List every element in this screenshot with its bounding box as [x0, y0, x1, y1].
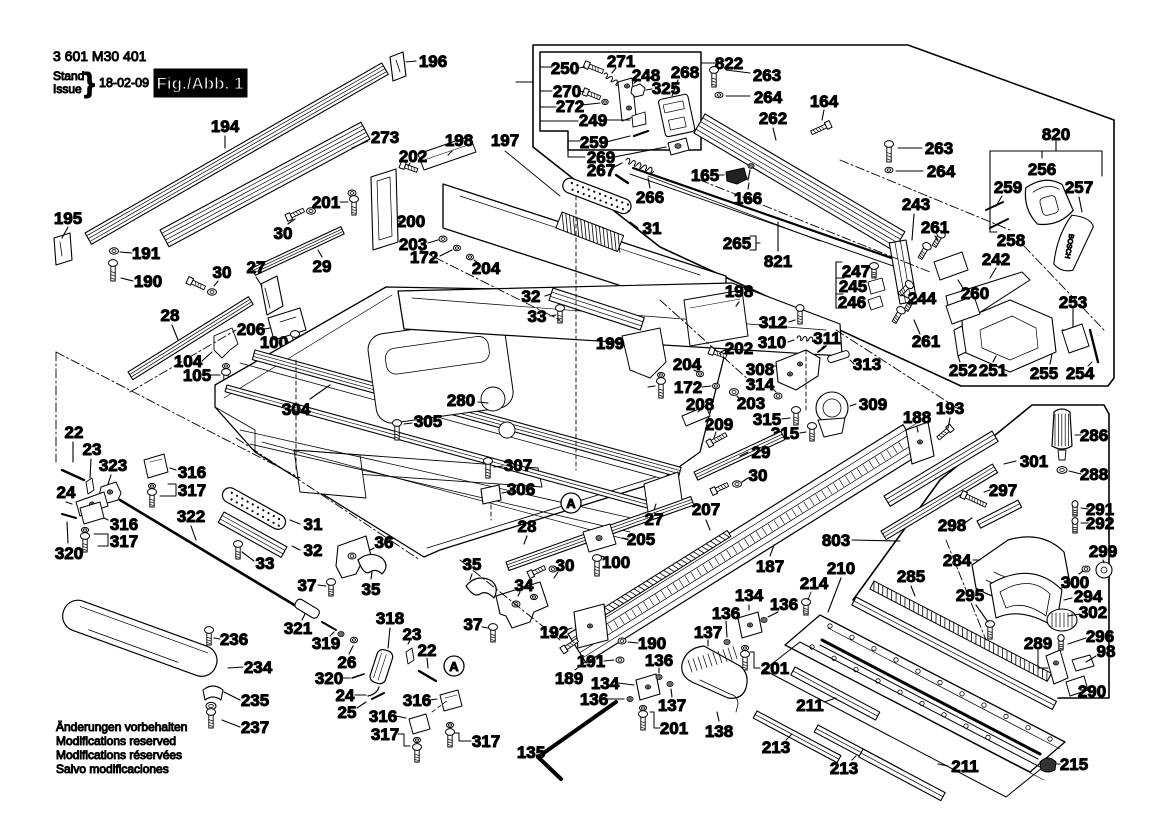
svg-text:246: 246: [838, 293, 866, 312]
svg-text:Stand: Stand: [53, 69, 84, 83]
svg-text:Modifications réservées: Modifications réservées: [56, 748, 182, 762]
svg-text:194: 194: [211, 117, 240, 136]
svg-text:201: 201: [312, 193, 340, 212]
svg-text:136: 136: [770, 595, 798, 614]
svg-text:213: 213: [762, 738, 790, 757]
svg-text:30: 30: [213, 263, 232, 282]
svg-text:100: 100: [602, 553, 630, 572]
svg-text:202: 202: [399, 147, 427, 166]
svg-text:27: 27: [247, 258, 266, 277]
svg-text:262: 262: [759, 109, 787, 128]
svg-text:24: 24: [57, 483, 76, 502]
svg-text:A: A: [449, 659, 459, 674]
svg-text:286: 286: [1080, 426, 1108, 445]
svg-text:211: 211: [796, 696, 823, 715]
svg-text:35: 35: [362, 580, 381, 599]
svg-text:280: 280: [447, 391, 475, 410]
svg-text:316: 316: [369, 707, 397, 726]
svg-text:237: 237: [241, 718, 269, 737]
svg-text:261: 261: [921, 218, 949, 237]
svg-text:267: 267: [587, 161, 615, 180]
svg-text:258: 258: [997, 231, 1025, 250]
svg-text:264: 264: [754, 88, 783, 107]
svg-text:166: 166: [734, 189, 762, 208]
svg-text:821: 821: [764, 252, 792, 271]
svg-text:322: 322: [177, 507, 205, 526]
svg-text:250: 250: [551, 59, 579, 78]
svg-text:256: 256: [1028, 160, 1056, 179]
svg-text:172: 172: [410, 248, 438, 267]
svg-text:191: 191: [132, 244, 160, 263]
svg-text:22: 22: [418, 641, 437, 660]
svg-text:213: 213: [830, 759, 858, 778]
svg-text:312: 312: [759, 313, 787, 332]
svg-text:235: 235: [241, 691, 269, 710]
svg-text:266: 266: [636, 188, 664, 207]
svg-text:22: 22: [65, 423, 84, 442]
svg-text:138: 138: [705, 722, 733, 741]
svg-text:137: 137: [694, 623, 722, 642]
svg-text:318: 318: [376, 609, 404, 628]
svg-text:136: 136: [712, 604, 740, 623]
svg-text:295: 295: [956, 586, 984, 605]
svg-text:263: 263: [925, 139, 953, 158]
svg-text:37: 37: [464, 615, 483, 634]
svg-text:298: 298: [938, 516, 966, 535]
svg-text:28: 28: [518, 517, 537, 536]
svg-text:261: 261: [912, 332, 940, 351]
svg-text:Änderungen vorbehalten: Änderungen vorbehalten: [56, 720, 187, 734]
svg-text:321: 321: [284, 619, 312, 638]
svg-text:255: 255: [1030, 364, 1058, 383]
svg-text:257: 257: [1065, 178, 1093, 197]
svg-text:188: 188: [903, 408, 931, 427]
svg-text:265: 265: [723, 234, 751, 253]
svg-text:319: 319: [312, 634, 340, 653]
svg-text:187: 187: [756, 557, 784, 576]
svg-text:259: 259: [994, 178, 1022, 197]
svg-text:209: 209: [705, 415, 733, 434]
svg-text:28: 28: [161, 306, 180, 325]
svg-text:268: 268: [671, 63, 699, 82]
svg-text:290: 290: [1078, 682, 1106, 701]
svg-text:244: 244: [908, 289, 937, 308]
svg-text:3 601 M30 401: 3 601 M30 401: [53, 48, 147, 64]
svg-text:300: 300: [1061, 573, 1089, 592]
svg-text:205: 205: [627, 530, 655, 549]
svg-text:302: 302: [1079, 603, 1107, 622]
svg-text:214: 214: [800, 574, 829, 593]
svg-text:31: 31: [643, 219, 662, 238]
svg-text:210: 210: [827, 559, 855, 578]
svg-text:Modifications reserved: Modifications reserved: [56, 734, 176, 748]
svg-text:18-02-09: 18-02-09: [99, 76, 149, 90]
svg-text:197: 197: [491, 131, 519, 150]
svg-text:200: 200: [397, 212, 425, 231]
svg-text:234: 234: [244, 658, 273, 677]
svg-text:196: 196: [419, 52, 447, 71]
svg-text:Salvo modificaciones: Salvo modificaciones: [56, 762, 169, 776]
svg-text:803: 803: [822, 531, 850, 550]
svg-text:105: 105: [183, 366, 211, 385]
svg-text:33: 33: [528, 307, 547, 326]
svg-text:236: 236: [220, 630, 248, 649]
svg-text:195: 195: [54, 209, 82, 228]
svg-text:307: 307: [504, 456, 532, 475]
svg-text:29: 29: [752, 443, 771, 462]
svg-text:27: 27: [645, 510, 664, 529]
svg-text:309: 309: [859, 395, 887, 414]
svg-text:}: }: [84, 67, 95, 98]
svg-text:203: 203: [737, 394, 765, 413]
svg-text:242: 242: [982, 250, 1010, 269]
svg-text:164: 164: [810, 92, 839, 111]
svg-text:263: 263: [753, 66, 781, 85]
svg-text:31: 31: [304, 515, 323, 534]
svg-text:134: 134: [735, 586, 764, 605]
svg-text:135: 135: [517, 743, 545, 762]
svg-text:292: 292: [1086, 514, 1114, 533]
svg-text:316: 316: [178, 463, 206, 482]
svg-text:297: 297: [989, 481, 1017, 500]
svg-text:311: 311: [813, 329, 840, 348]
svg-text:264: 264: [927, 162, 956, 181]
svg-text:215: 215: [1060, 755, 1088, 774]
svg-text:201: 201: [660, 719, 688, 738]
svg-text:30: 30: [274, 224, 293, 243]
svg-text:320: 320: [55, 544, 83, 563]
svg-text:273: 273: [371, 128, 399, 147]
svg-text:316: 316: [403, 691, 431, 710]
svg-text:208: 208: [686, 395, 714, 414]
svg-text:137: 137: [658, 696, 686, 715]
svg-text:198: 198: [725, 282, 753, 301]
svg-text:254: 254: [1066, 364, 1095, 383]
svg-text:34: 34: [515, 576, 534, 595]
svg-text:252: 252: [949, 361, 977, 380]
svg-text:198: 198: [445, 131, 473, 150]
svg-text:305: 305: [414, 412, 442, 431]
svg-text:314: 314: [746, 375, 775, 394]
svg-text:249: 249: [579, 111, 607, 130]
svg-text:25: 25: [338, 703, 357, 722]
svg-text:317: 317: [110, 532, 138, 551]
svg-text:211: 211: [951, 757, 978, 776]
svg-text:136: 136: [580, 690, 608, 709]
svg-text:Fig./Abb. 1: Fig./Abb. 1: [157, 74, 244, 93]
svg-text:299: 299: [1089, 542, 1117, 561]
svg-text:323: 323: [99, 456, 127, 475]
svg-text:260: 260: [961, 284, 989, 303]
svg-text:32: 32: [522, 287, 541, 306]
svg-text:251: 251: [979, 361, 1007, 380]
svg-text:A: A: [566, 496, 576, 511]
svg-text:189: 189: [555, 669, 583, 688]
svg-text:190: 190: [134, 272, 162, 291]
svg-text:313: 313: [853, 355, 881, 374]
svg-text:243: 243: [902, 195, 930, 214]
svg-text:136: 136: [645, 651, 673, 670]
svg-text:Issue: Issue: [53, 82, 82, 96]
svg-text:820: 820: [1042, 125, 1070, 144]
svg-text:37: 37: [298, 576, 317, 595]
svg-text:317: 317: [371, 725, 399, 744]
svg-text:310: 310: [758, 333, 786, 352]
svg-text:301: 301: [1020, 452, 1048, 471]
svg-text:285: 285: [897, 567, 925, 586]
svg-text:306: 306: [507, 480, 535, 499]
svg-text:202: 202: [725, 339, 753, 358]
svg-text:317: 317: [178, 481, 206, 500]
svg-text:98: 98: [1097, 642, 1116, 661]
svg-text:29: 29: [313, 257, 332, 276]
svg-text:193: 193: [936, 399, 964, 418]
svg-text:192: 192: [540, 623, 568, 642]
svg-text:30: 30: [749, 466, 768, 485]
svg-text:317: 317: [472, 732, 500, 751]
svg-text:32: 32: [304, 541, 323, 560]
svg-text:288: 288: [1080, 465, 1108, 484]
svg-text:207: 207: [692, 500, 720, 519]
svg-text:191: 191: [577, 652, 605, 671]
svg-text:33: 33: [256, 554, 275, 573]
